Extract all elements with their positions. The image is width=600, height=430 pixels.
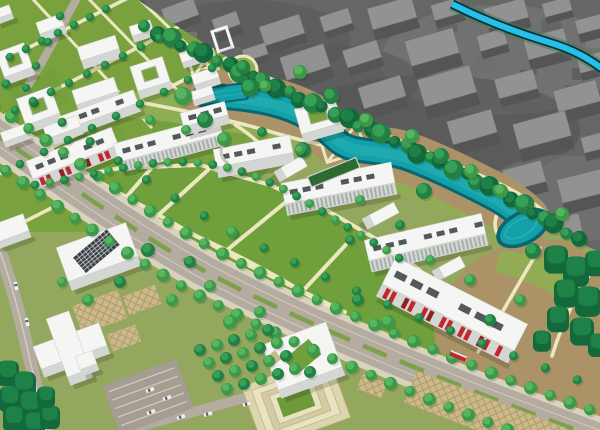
tree-cluster [547, 306, 569, 332]
tree-cluster [575, 286, 600, 317]
tree-cluster [533, 331, 551, 352]
tree-cluster [3, 406, 25, 430]
masterplan-rendering [0, 0, 600, 430]
tree-cluster [585, 250, 600, 276]
tree-cluster [40, 406, 60, 430]
tree-cluster [588, 334, 600, 358]
tree-cluster [37, 387, 55, 408]
tree-cluster [554, 279, 578, 307]
masterplan-scene [0, 0, 600, 430]
